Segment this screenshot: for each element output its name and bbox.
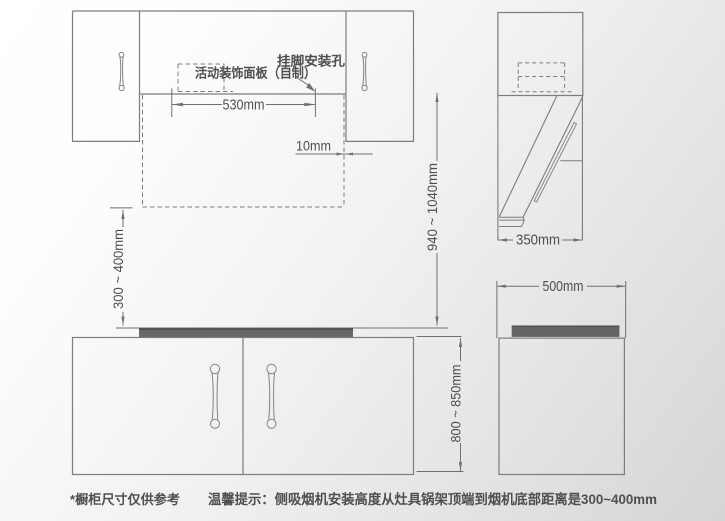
svg-text:300 ~ 400mm: 300 ~ 400mm bbox=[110, 229, 126, 309]
svg-text:940 ~ 1040mm: 940 ~ 1040mm bbox=[424, 163, 440, 251]
svg-text:*橱柜尺寸仅供参考: *橱柜尺寸仅供参考 bbox=[70, 492, 180, 507]
svg-text:温馨提示：侧吸烟机安装高度从灶具锅架顶端到烟机底部距离是30: 温馨提示：侧吸烟机安装高度从灶具锅架顶端到烟机底部距离是300~400mm bbox=[208, 491, 657, 507]
svg-text:500mm: 500mm bbox=[543, 278, 584, 295]
svg-text:挂脚安装孔: 挂脚安装孔 bbox=[277, 53, 346, 69]
svg-text:800 ~ 850mm: 800 ~ 850mm bbox=[448, 365, 464, 443]
svg-text:350mm: 350mm bbox=[516, 232, 560, 249]
svg-text:530mm: 530mm bbox=[223, 97, 265, 114]
svg-text:10mm: 10mm bbox=[296, 139, 331, 154]
